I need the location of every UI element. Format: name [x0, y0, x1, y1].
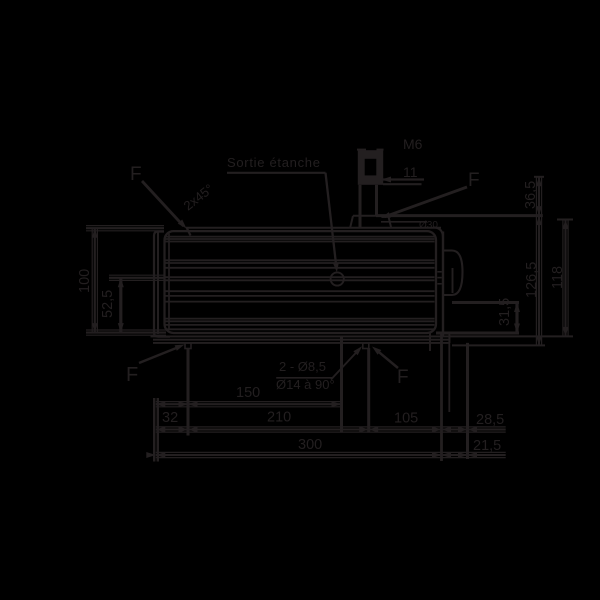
svg-text:Ø14 à 90°: Ø14 à 90° — [276, 377, 335, 392]
svg-text:2x45°: 2x45° — [181, 181, 217, 213]
svg-text:21,5: 21,5 — [473, 438, 501, 454]
svg-text:F: F — [468, 170, 480, 191]
svg-text:126,5: 126,5 — [524, 262, 540, 298]
svg-text:F: F — [397, 367, 409, 388]
svg-text:Sortie étanche: Sortie étanche — [227, 155, 321, 170]
svg-text:Ø30: Ø30 — [419, 220, 438, 231]
svg-text:105: 105 — [394, 411, 418, 427]
svg-text:31,5: 31,5 — [497, 298, 513, 326]
svg-text:32: 32 — [162, 410, 178, 426]
svg-text:150: 150 — [236, 385, 260, 401]
svg-text:118: 118 — [550, 266, 566, 289]
svg-text:F: F — [130, 164, 142, 185]
svg-text:300: 300 — [298, 437, 322, 453]
svg-text:2 - Ø8,5: 2 - Ø8,5 — [279, 359, 326, 374]
svg-text:11: 11 — [403, 164, 418, 180]
svg-text:52,5: 52,5 — [100, 290, 116, 318]
svg-text:36,5: 36,5 — [523, 181, 539, 209]
svg-text:M6: M6 — [403, 136, 423, 152]
svg-text:F: F — [126, 364, 138, 386]
svg-text:210: 210 — [267, 410, 291, 426]
svg-text:100: 100 — [77, 269, 93, 293]
svg-text:28,5: 28,5 — [476, 412, 504, 428]
